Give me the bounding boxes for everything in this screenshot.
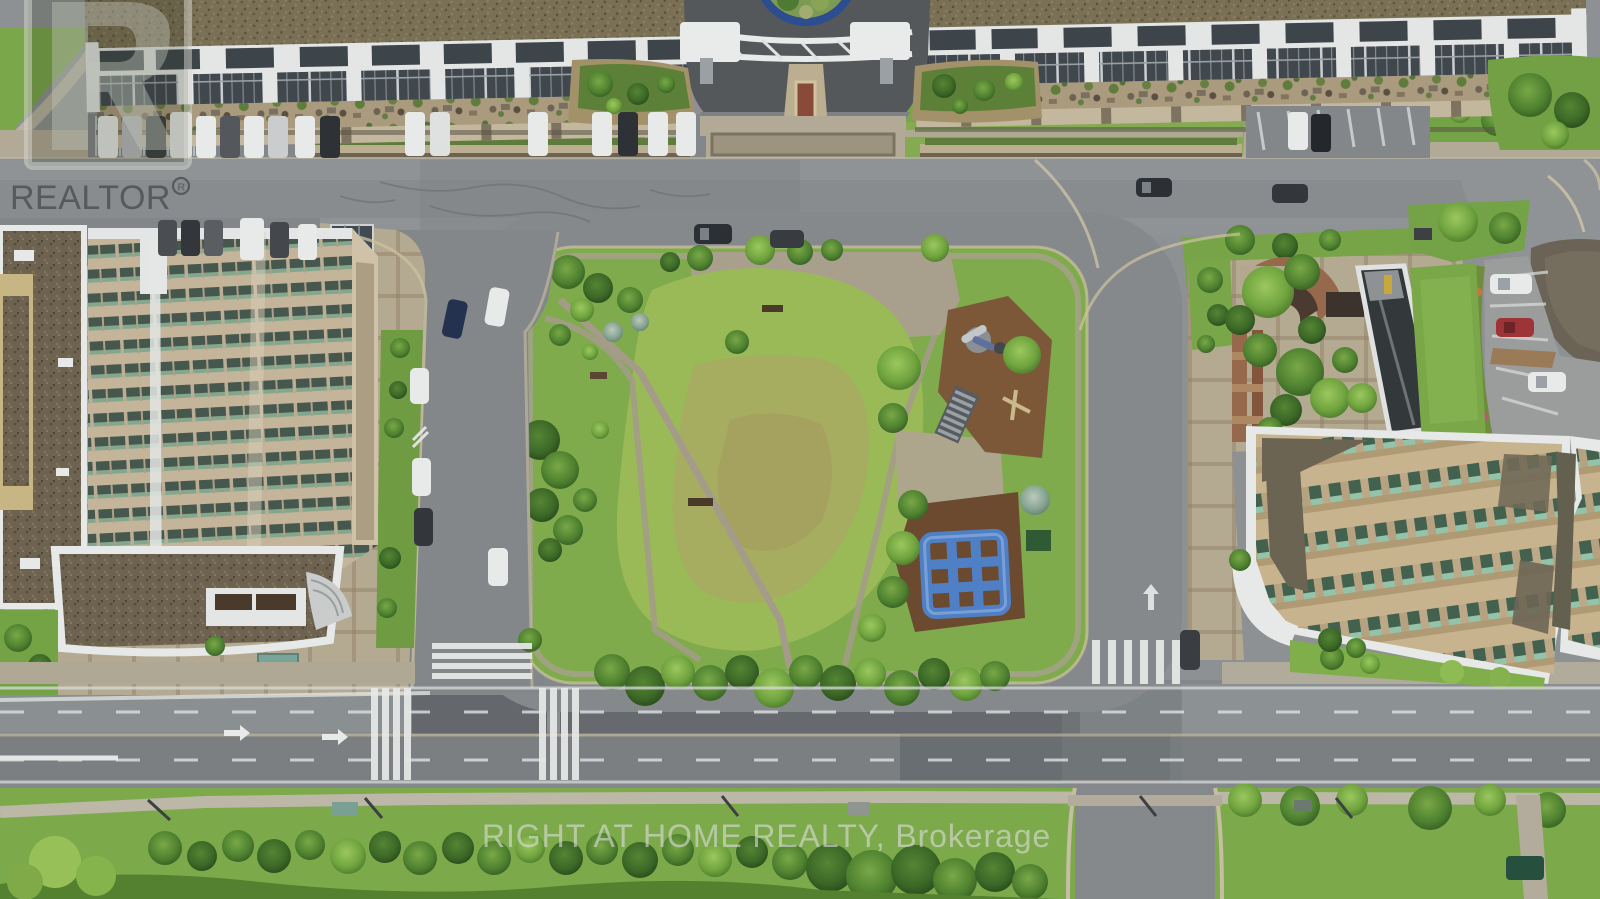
svg-text:REALTOR: REALTOR [10, 179, 171, 217]
svg-text:RIGHT AT HOME REALTY, Brokerag: RIGHT AT HOME REALTY, Brokerage [482, 818, 1051, 854]
svg-text:R: R [178, 182, 186, 194]
